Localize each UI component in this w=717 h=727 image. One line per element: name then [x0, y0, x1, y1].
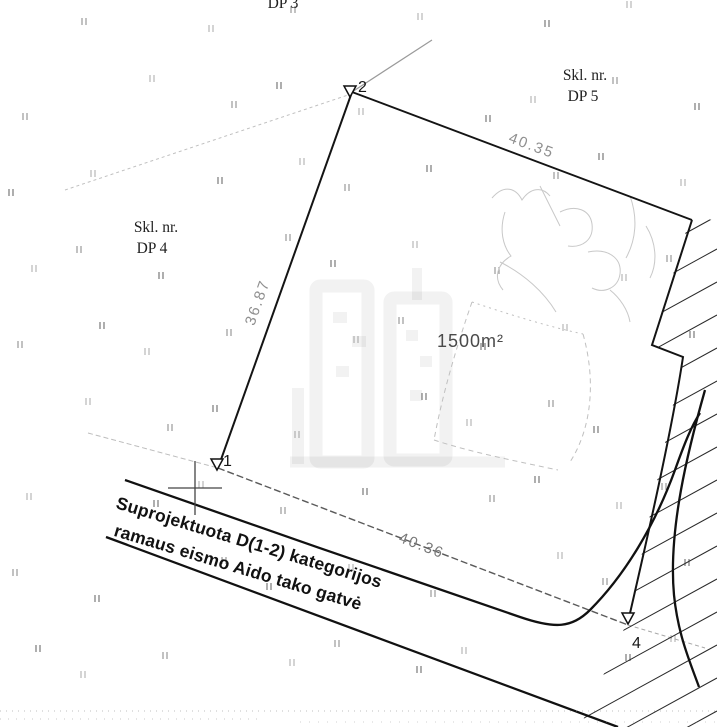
hatched-area [480, 150, 717, 727]
plan-drawing: DP 3 Skl. nr. DP 5 Skl. nr. DP 4 1500m² … [0, 0, 717, 727]
parcel-label-dp5-line2: DP 5 [568, 88, 599, 105]
measurement-top-edge: 40.35 [506, 130, 556, 163]
parcel-boundary [218, 92, 692, 622]
point-label-4: 4 [632, 635, 641, 652]
watermark-windows [333, 312, 432, 401]
parcel-label-dp5-line1: Skl. nr. [563, 67, 607, 84]
point-label-2: 2 [358, 79, 367, 96]
corner-marker-4 [622, 613, 634, 624]
parcel-edge-right [628, 220, 692, 622]
scanned-cadastral-plan: DP 3 Skl. nr. DP 5 Skl. nr. DP 4 1500m² … [0, 0, 717, 727]
point-label-1: 1 [223, 453, 232, 470]
measurement-bottom-edge: 40.36 [396, 529, 446, 562]
pencil-scribbles [492, 186, 655, 322]
measurement-left-edge: 36.87 [242, 277, 274, 327]
watermark-logo [290, 268, 505, 464]
parcel-label-dp4-line1: Skl. nr. [134, 219, 178, 236]
parcel-label-dp3: DP 3 [268, 0, 299, 12]
corner-marker-1 [211, 459, 223, 470]
survey-cross [168, 461, 222, 515]
street-edge-top [125, 413, 700, 625]
parcel-label-dp4-line2: DP 4 [137, 240, 168, 257]
area-label: 1500m² [437, 331, 504, 351]
scan-speckle [0, 711, 717, 722]
